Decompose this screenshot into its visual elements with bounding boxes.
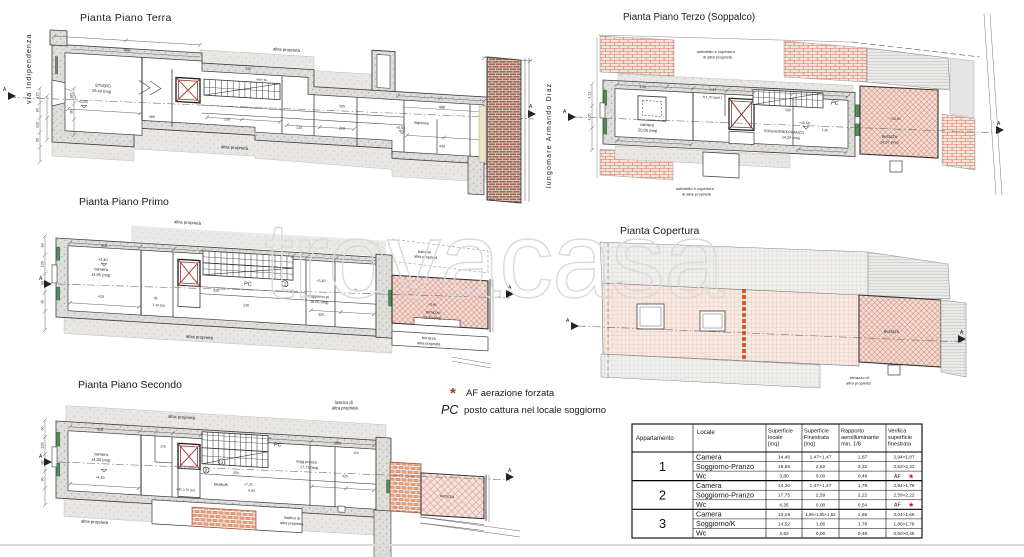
svg-text:1: 1 bbox=[659, 459, 666, 474]
svg-text:ingresso: ingresso bbox=[414, 120, 430, 126]
svg-text:1,87: 1,87 bbox=[858, 455, 868, 461]
svg-text:0,54: 0,54 bbox=[858, 502, 868, 508]
svg-text:superficie: superficie bbox=[888, 435, 912, 441]
svg-text:Pianta Piano Terzo (Soppalco): Pianta Piano Terzo (Soppalco) bbox=[623, 12, 755, 23]
svg-text:325: 325 bbox=[339, 104, 345, 108]
svg-text:Finestrata: Finestrata bbox=[804, 435, 830, 441]
svg-text:PC: PC bbox=[244, 281, 252, 287]
svg-text:14,20: 14,20 bbox=[778, 483, 791, 489]
svg-text:466: 466 bbox=[149, 115, 155, 119]
svg-text:0,00: 0,00 bbox=[816, 502, 826, 508]
svg-text:4,35: 4,35 bbox=[779, 502, 789, 508]
svg-text:415: 415 bbox=[98, 295, 104, 299]
svg-text:1,86>1,78: 1,86>1,78 bbox=[894, 521, 915, 526]
svg-text:Verifica: Verifica bbox=[888, 429, 907, 435]
svg-text:Appartamento: Appartamento bbox=[636, 436, 674, 442]
svg-text:20,05 (mq): 20,05 (mq) bbox=[638, 127, 658, 133]
svg-text:2,22: 2,22 bbox=[858, 493, 868, 499]
svg-text:lungomare Armando Diaz: lungomare Armando Diaz bbox=[546, 83, 553, 188]
svg-text:1,36: 1,36 bbox=[822, 128, 828, 132]
svg-text:14,46: 14,46 bbox=[778, 455, 791, 461]
svg-text:415: 415 bbox=[101, 244, 107, 248]
svg-text:1,78: 1,78 bbox=[858, 483, 868, 489]
svg-text:+7,25: +7,25 bbox=[244, 482, 253, 487]
svg-text:terrazzo: terrazzo bbox=[882, 134, 898, 139]
svg-text:325: 325 bbox=[342, 474, 348, 478]
svg-text:altra proprietà: altra proprietà bbox=[846, 381, 871, 386]
svg-text:vano sc.: vano sc. bbox=[256, 77, 268, 82]
svg-text:*: * bbox=[450, 385, 456, 402]
svg-text:40: 40 bbox=[41, 300, 45, 304]
svg-text:415: 415 bbox=[97, 427, 103, 431]
svg-text:aeroilluminante: aeroilluminante bbox=[841, 435, 879, 441]
svg-text:2,59>2,22: 2,59>2,22 bbox=[894, 493, 915, 498]
svg-text:1,21: 1,21 bbox=[588, 92, 592, 99]
svg-text:14,52: 14,52 bbox=[778, 521, 791, 527]
svg-text:356: 356 bbox=[233, 471, 239, 475]
svg-text:4,05: 4,05 bbox=[588, 114, 592, 121]
svg-text:130: 130 bbox=[243, 303, 249, 307]
svg-text:+4,40: +4,40 bbox=[95, 475, 104, 480]
svg-text:135: 135 bbox=[41, 261, 45, 267]
svg-text:90: 90 bbox=[41, 478, 45, 482]
svg-text:80: 80 bbox=[70, 110, 74, 114]
svg-text:14,37 (mq): 14,37 (mq) bbox=[880, 140, 900, 145]
svg-text:2,94>1,78: 2,94>1,78 bbox=[894, 483, 915, 488]
svg-text:Rapporto: Rapporto bbox=[841, 429, 864, 435]
svg-text:posto cattura nel locale soggi: posto cattura nel locale soggiorno bbox=[464, 405, 606, 416]
svg-text:[mq]: [mq] bbox=[804, 441, 815, 447]
svg-text:185: 185 bbox=[70, 93, 74, 99]
svg-text:Superficie: Superficie bbox=[768, 429, 793, 435]
svg-text:+0,03: +0,03 bbox=[396, 126, 405, 131]
svg-text:13,19: 13,19 bbox=[778, 512, 791, 518]
svg-text:tinello/K: tinello/K bbox=[214, 481, 229, 487]
svg-text:Camera: Camera bbox=[696, 481, 722, 490]
svg-text:1,30 (sx): 1,30 (sx) bbox=[153, 303, 165, 308]
svg-text:0,00: 0,00 bbox=[816, 474, 826, 480]
svg-text:1,86: 1,86 bbox=[816, 521, 826, 527]
svg-text:AF: AF bbox=[894, 474, 901, 480]
svg-text:0,00: 0,00 bbox=[816, 531, 826, 537]
svg-text:★: ★ bbox=[908, 501, 914, 509]
svg-text:300: 300 bbox=[335, 441, 341, 445]
svg-text:4,00: 4,00 bbox=[248, 489, 255, 493]
svg-text:0,50>0,45: 0,50>0,45 bbox=[894, 531, 915, 536]
svg-text:Camera: Camera bbox=[696, 510, 722, 519]
svg-text:sottotetto e copertura: sottotetto e copertura bbox=[676, 186, 715, 191]
svg-text:290: 290 bbox=[785, 108, 791, 112]
svg-text:1,65: 1,65 bbox=[858, 512, 868, 518]
svg-text:Locale: Locale bbox=[697, 430, 715, 436]
svg-text:PC: PC bbox=[441, 403, 459, 417]
svg-text:18,55: 18,55 bbox=[778, 464, 791, 470]
svg-text:1,47+1,47: 1,47+1,47 bbox=[810, 455, 832, 461]
svg-text:trovacasa: trovacasa bbox=[264, 199, 725, 320]
svg-text:locale: locale bbox=[768, 435, 783, 441]
svg-text:di altre proprietà: di altre proprietà bbox=[682, 192, 712, 197]
svg-text:80: 80 bbox=[36, 108, 40, 112]
svg-text:80: 80 bbox=[41, 461, 45, 465]
svg-text:Pianta Piano Primo: Pianta Piano Primo bbox=[79, 196, 169, 208]
svg-text:terrazzo di: terrazzo di bbox=[850, 375, 869, 380]
svg-text:80: 80 bbox=[41, 243, 45, 247]
svg-text:Wc: Wc bbox=[696, 471, 707, 480]
svg-text:3: 3 bbox=[659, 516, 666, 531]
svg-text:140: 140 bbox=[245, 67, 251, 71]
svg-text:135: 135 bbox=[41, 443, 45, 449]
svg-text:130: 130 bbox=[224, 117, 230, 121]
svg-text:17,75: 17,75 bbox=[778, 493, 791, 499]
svg-text:Soggiorno-Pranzo: Soggiorno-Pranzo bbox=[696, 462, 754, 471]
svg-text:320: 320 bbox=[36, 122, 40, 128]
svg-text:Wc: Wc bbox=[696, 529, 707, 538]
svg-text:lastrico di: lastrico di bbox=[335, 400, 353, 405]
svg-text:50: 50 bbox=[41, 427, 45, 431]
svg-text:Superficie: Superficie bbox=[804, 429, 829, 435]
svg-text:3,82: 3,82 bbox=[779, 531, 789, 537]
svg-text:PC: PC bbox=[831, 100, 839, 106]
svg-text:2,32: 2,32 bbox=[858, 464, 868, 470]
svg-text:130: 130 bbox=[296, 126, 302, 130]
svg-text:60: 60 bbox=[36, 138, 40, 142]
svg-text:+3,40: +3,40 bbox=[98, 258, 108, 263]
svg-text:2,52>2,32: 2,52>2,32 bbox=[894, 464, 915, 469]
svg-text:226: 226 bbox=[160, 444, 166, 448]
svg-text:+10,60: +10,60 bbox=[890, 117, 901, 121]
svg-text:altra proprietà: altra proprietà bbox=[332, 406, 359, 411]
svg-text:480: 480 bbox=[439, 105, 445, 109]
svg-text:Pianta Piano Secondo: Pianta Piano Secondo bbox=[78, 379, 182, 391]
svg-text:Wc: Wc bbox=[696, 500, 707, 509]
svg-text:sottotetto e copertura: sottotetto e copertura bbox=[697, 49, 736, 54]
svg-text:3,80: 3,80 bbox=[779, 474, 789, 480]
svg-text:min. 1/8: min. 1/8 bbox=[841, 441, 861, 447]
svg-text:2,52: 2,52 bbox=[816, 464, 826, 470]
svg-text:PC: PC bbox=[274, 442, 282, 448]
svg-text:finestrata: finestrata bbox=[888, 441, 912, 447]
svg-text:Soggiorno-Pranzo: Soggiorno-Pranzo bbox=[696, 491, 754, 500]
svg-text:2: 2 bbox=[659, 487, 666, 502]
svg-text:1,47+1,47: 1,47+1,47 bbox=[810, 483, 832, 489]
svg-text:2,94>1,87: 2,94>1,87 bbox=[894, 455, 915, 460]
svg-text:Camera: Camera bbox=[696, 452, 722, 461]
svg-text:2,59: 2,59 bbox=[816, 493, 826, 499]
svg-text:115: 115 bbox=[36, 93, 40, 99]
svg-text:terrazza: terrazza bbox=[440, 493, 455, 499]
svg-text:AF: AF bbox=[894, 503, 901, 509]
svg-text:1,86+1,55+1,63: 1,86+1,55+1,63 bbox=[805, 512, 836, 517]
svg-text:terrazzo: terrazzo bbox=[884, 329, 900, 334]
svg-text:1,78: 1,78 bbox=[858, 521, 868, 527]
svg-text:rip.: rip. bbox=[154, 296, 159, 300]
svg-text:4,91: 4,91 bbox=[640, 85, 647, 89]
svg-text:+10,60: +10,60 bbox=[799, 121, 810, 126]
svg-text:di altre proprietà: di altre proprietà bbox=[703, 55, 733, 60]
svg-text:150: 150 bbox=[353, 451, 359, 455]
svg-text:430: 430 bbox=[439, 144, 445, 148]
svg-text:Soggiorno/K: Soggiorno/K bbox=[696, 519, 736, 528]
svg-text:[mq]: [mq] bbox=[768, 441, 779, 447]
svg-text:Pianta Piano Terra: Pianta Piano Terra bbox=[80, 12, 172, 24]
svg-text:★: ★ bbox=[908, 472, 914, 480]
svg-text:3,04>1,65: 3,04>1,65 bbox=[894, 512, 915, 517]
svg-text:0,48: 0,48 bbox=[858, 531, 868, 537]
svg-text:445: 445 bbox=[124, 48, 130, 52]
svg-text:via Indipendenza: via Indipendenza bbox=[26, 33, 33, 104]
svg-text:AF aerazione forzata: AF aerazione forzata bbox=[466, 388, 555, 399]
svg-text:0,48: 0,48 bbox=[858, 474, 868, 480]
